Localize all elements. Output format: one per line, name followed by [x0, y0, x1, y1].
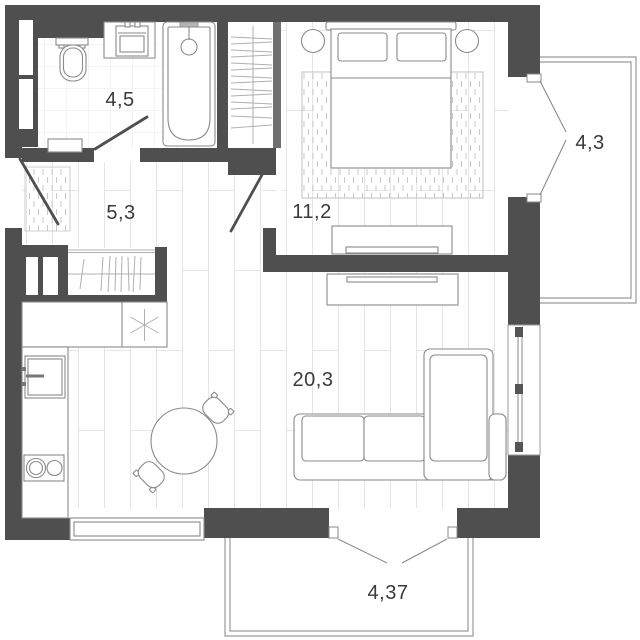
kitchen-sink: [22, 356, 65, 398]
kitchen-living-area-label: 20,3: [293, 369, 334, 391]
balcony-right-area-label: 4,3: [575, 132, 604, 154]
nightstand-right: [456, 30, 479, 53]
towel-radiator: [48, 139, 82, 152]
bathtub: [163, 22, 215, 146]
bedroom-balcony-door: [527, 74, 566, 202]
bathroom-area-label: 4,5: [105, 89, 134, 111]
living-tv-console: [327, 274, 458, 305]
bathroom-sink: [104, 22, 155, 58]
balcony-right-outline: [540, 57, 636, 303]
living-room-window: [508, 325, 540, 455]
hallway-area-label: 5,3: [106, 202, 135, 224]
dining-table: [151, 408, 217, 474]
hallway-closet: [68, 248, 155, 295]
nightstand-left: [302, 30, 325, 53]
living-balcony-door: [329, 527, 457, 563]
bed: [326, 22, 456, 168]
cooktop-burners: [24, 455, 64, 481]
floor-plan: 4,5 5,3 11,2 4,3 20,3 4,37: [0, 0, 640, 640]
balcony-bottom-outline: [225, 538, 473, 636]
balcony-bottom-area-label: 4,37: [368, 582, 409, 604]
bedroom-area-label: 11,2: [292, 201, 331, 223]
bedroom-dresser-tv: [332, 226, 452, 254]
kitchen-window: [70, 518, 204, 540]
wardrobe: [228, 22, 273, 148]
toilet: [56, 38, 88, 81]
